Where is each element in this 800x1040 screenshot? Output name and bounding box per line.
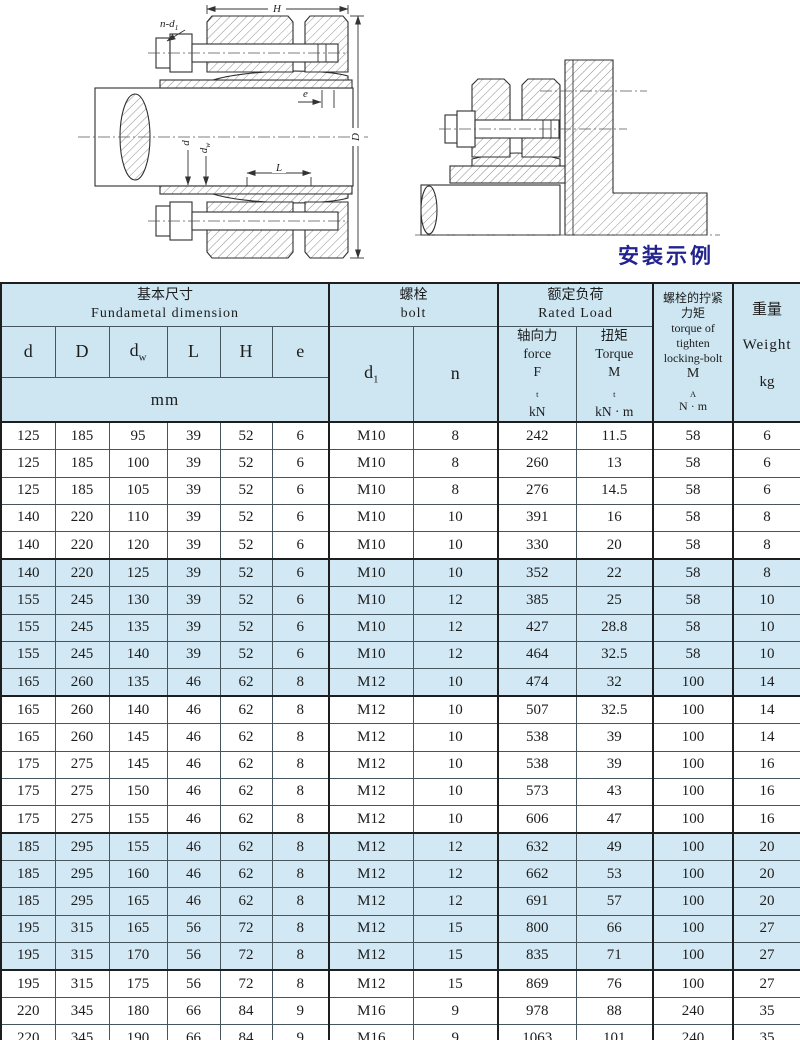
table-cell: 185: [1, 888, 55, 915]
table-cell: 47: [576, 805, 653, 833]
table-row: 17527514546628M12105383910016: [1, 751, 800, 778]
table-cell: 16: [733, 751, 800, 778]
table-row: 19531516556728M12158006610027: [1, 915, 800, 942]
catalog-page: H n-d1 e D d dw L: [0, 0, 800, 1040]
table-cell: 16: [733, 778, 800, 805]
table-cell: 869: [498, 970, 576, 998]
force-zh: 轴向力: [499, 327, 576, 345]
table-cell: 10: [413, 724, 498, 751]
table-cell: 6: [733, 422, 800, 450]
table-cell: M10: [329, 559, 413, 587]
table-cell: 185: [55, 477, 109, 504]
table-cell: 240: [653, 998, 733, 1025]
table-cell: 46: [167, 833, 220, 861]
table-cell: 9: [272, 998, 329, 1025]
table-cell: 72: [220, 970, 272, 998]
table-cell: 165: [1, 668, 55, 696]
table-cell: 14: [733, 696, 800, 724]
table-cell: 125: [1, 422, 55, 450]
table-row: 14022012539526M101035222588: [1, 559, 800, 587]
table-cell: 10: [733, 641, 800, 668]
table-cell: 39: [167, 614, 220, 641]
table-cell: 46: [167, 778, 220, 805]
table-cell: 35: [733, 1025, 800, 1040]
header-weight: 重量 Weight kg: [733, 283, 800, 422]
table-cell: 95: [109, 422, 167, 450]
table-cell: M10: [329, 532, 413, 560]
tighten-unit: N · m: [654, 399, 732, 414]
table-cell: 260: [55, 696, 109, 724]
table-cell: 46: [167, 724, 220, 751]
table-cell: 125: [1, 450, 55, 477]
table-cell: 190: [109, 1025, 167, 1040]
dimension-nd1-label: n-d1: [160, 18, 178, 32]
basic-dimension-zh: 基本尺寸: [2, 287, 328, 305]
table-cell: 295: [55, 861, 109, 888]
table-cell: 195: [1, 942, 55, 970]
table-cell: 160: [109, 861, 167, 888]
installation-example-caption: 安装示例: [618, 240, 758, 270]
table-cell: 58: [653, 614, 733, 641]
header-basic-dimension: 基本尺寸 Fundametal dimension: [1, 283, 329, 326]
table-cell: M12: [329, 861, 413, 888]
table-cell: 8: [272, 805, 329, 833]
table-cell: M10: [329, 477, 413, 504]
col-header-n: n: [413, 326, 498, 422]
table-cell: 145: [109, 751, 167, 778]
flange-hub: [565, 60, 707, 235]
table-cell: 8: [272, 696, 329, 724]
bolt-zh: 螺栓: [330, 287, 497, 305]
table-cell: 6: [272, 532, 329, 560]
table-cell: 165: [109, 915, 167, 942]
table-cell: 84: [220, 998, 272, 1025]
table-cell: 20: [733, 861, 800, 888]
table-cell: 220: [55, 532, 109, 560]
weight-zh: 重量: [734, 295, 800, 337]
table-cell: 84: [220, 1025, 272, 1040]
table-cell: M10: [329, 422, 413, 450]
table-cell: 13: [576, 450, 653, 477]
table-cell: 58: [653, 450, 733, 477]
col-header-e: e: [272, 326, 329, 378]
table-cell: 100: [653, 696, 733, 724]
table-cell: 16: [733, 805, 800, 833]
table-row: 1251859539526M10824211.5586: [1, 422, 800, 450]
table-cell: 56: [167, 942, 220, 970]
table-cell: 39: [167, 559, 220, 587]
table-cell: 62: [220, 751, 272, 778]
table-cell: 8: [413, 450, 498, 477]
table-cell: 185: [1, 833, 55, 861]
table-cell: 52: [220, 532, 272, 560]
table-cell: 16: [576, 504, 653, 531]
table-cell: 155: [109, 833, 167, 861]
table-cell: 165: [109, 888, 167, 915]
table-cell: 25: [576, 587, 653, 614]
table-cell: M12: [329, 888, 413, 915]
table-cell: M16: [329, 1025, 413, 1040]
table-cell: 245: [55, 587, 109, 614]
table-cell: 100: [653, 970, 733, 998]
tighten-en2: tighten: [654, 336, 732, 351]
table-cell: 220: [1, 1025, 55, 1040]
table-cell: 155: [1, 641, 55, 668]
table-cell: 220: [55, 559, 109, 587]
table-cell: 58: [653, 422, 733, 450]
table-cell: 6: [272, 614, 329, 641]
table-cell: 20: [733, 833, 800, 861]
table-cell: 8: [413, 422, 498, 450]
table-row: 17527515046628M12105734310016: [1, 778, 800, 805]
dimension-L-label: L: [275, 162, 282, 174]
table-cell: 6: [733, 477, 800, 504]
table-cell: 10: [413, 778, 498, 805]
table-cell: 260: [55, 724, 109, 751]
table-cell: 345: [55, 1025, 109, 1040]
table-cell: 276: [498, 477, 576, 504]
table-cell: M12: [329, 942, 413, 970]
table-cell: 10: [413, 668, 498, 696]
table-cell: 978: [498, 998, 576, 1025]
table-cell: 52: [220, 477, 272, 504]
table-cell: 352: [498, 559, 576, 587]
force-symbol: Ft: [499, 363, 576, 404]
table-cell: M12: [329, 833, 413, 861]
table-cell: 66: [576, 915, 653, 942]
table-cell: 15: [413, 915, 498, 942]
table-cell: 140: [1, 559, 55, 587]
torque-unit: kN · m: [577, 403, 653, 421]
dimension-H-label: H: [272, 3, 282, 15]
table-cell: 835: [498, 942, 576, 970]
table-cell: 315: [55, 915, 109, 942]
table-cell: 125: [109, 559, 167, 587]
table-cell: 62: [220, 696, 272, 724]
table-cell: M12: [329, 668, 413, 696]
table-cell: 72: [220, 915, 272, 942]
col-header-dw: dw: [109, 326, 167, 378]
tighten-en3: locking-bolt: [654, 351, 732, 366]
upper-thrust-ring: [160, 80, 352, 88]
table-row: 15524514039526M101246432.55810: [1, 641, 800, 668]
table-cell: 275: [55, 805, 109, 833]
table-cell: 245: [55, 641, 109, 668]
table-cell: 185: [1, 861, 55, 888]
table-cell: 130: [109, 587, 167, 614]
table-row: 14022012039526M101033020588: [1, 532, 800, 560]
drawing-installation-example: [415, 45, 725, 270]
table-cell: 538: [498, 751, 576, 778]
table-cell: 6: [272, 450, 329, 477]
table-cell: 39: [167, 532, 220, 560]
table-cell: 62: [220, 724, 272, 751]
table-cell: 145: [109, 724, 167, 751]
table-cell: 76: [576, 970, 653, 998]
table-cell: 14.5: [576, 477, 653, 504]
table-cell: 100: [653, 724, 733, 751]
table-cell: 72: [220, 942, 272, 970]
table-cell: 8: [733, 532, 800, 560]
table-cell: 14: [733, 724, 800, 751]
table-cell: M12: [329, 778, 413, 805]
dimension-d-label: d: [180, 140, 192, 146]
torque-en: Torque: [577, 345, 653, 363]
table-cell: 10: [413, 532, 498, 560]
table-cell: 52: [220, 641, 272, 668]
table-cell: 6: [272, 477, 329, 504]
table-cell: 88: [576, 998, 653, 1025]
table-cell: 27: [733, 915, 800, 942]
table-cell: 32.5: [576, 696, 653, 724]
table-cell: 110: [109, 504, 167, 531]
bolt-en: bolt: [330, 305, 497, 322]
table-cell: 62: [220, 888, 272, 915]
torque-zh: 扭矩: [577, 327, 653, 345]
table-cell: 125: [1, 477, 55, 504]
thrust-ring: [450, 166, 565, 183]
table-cell: 8: [272, 942, 329, 970]
drawing-section-view: H n-d1 e D d dw L: [0, 0, 395, 282]
table-cell: 105: [109, 477, 167, 504]
table-cell: 6: [272, 641, 329, 668]
table-cell: 100: [653, 778, 733, 805]
table-row: 15524513039526M1012385255810: [1, 587, 800, 614]
table-cell: M12: [329, 915, 413, 942]
table-cell: M10: [329, 641, 413, 668]
force-en: force: [499, 345, 576, 363]
table-cell: 52: [220, 587, 272, 614]
table-cell: 275: [55, 778, 109, 805]
table-cell: 15: [413, 942, 498, 970]
table-cell: 9: [413, 998, 498, 1025]
shaft-section-end: [421, 186, 437, 234]
table-cell: 155: [1, 587, 55, 614]
table-cell: 150: [109, 778, 167, 805]
table-cell: 100: [653, 915, 733, 942]
table-cell: 10: [733, 614, 800, 641]
table-cell: 165: [1, 724, 55, 751]
table-cell: 135: [109, 614, 167, 641]
table-cell: 220: [1, 998, 55, 1025]
table-cell: 8: [272, 833, 329, 861]
table-cell: 155: [1, 614, 55, 641]
table-cell: 101: [576, 1025, 653, 1040]
table-cell: 39: [167, 587, 220, 614]
table-cell: 242: [498, 422, 576, 450]
rated-load-en: Rated Load: [499, 305, 652, 322]
header-rated-load: 额定负荷 Rated Load: [498, 283, 653, 326]
table-cell: 56: [167, 970, 220, 998]
table-cell: 140: [109, 641, 167, 668]
table-cell: 8: [272, 778, 329, 805]
table-cell: 606: [498, 805, 576, 833]
table-cell: 165: [1, 696, 55, 724]
table-cell: 10: [413, 559, 498, 587]
table-cell: 52: [220, 422, 272, 450]
table-cell: 12: [413, 614, 498, 641]
dimension-e-label: e: [303, 88, 308, 100]
table-cell: 100: [653, 805, 733, 833]
table-cell: 46: [167, 696, 220, 724]
table-cell: 6: [272, 504, 329, 531]
table-row: 12518510539526M10827614.5586: [1, 477, 800, 504]
torque-symbol: Mt: [577, 363, 653, 404]
table-cell: 260: [498, 450, 576, 477]
table-cell: 62: [220, 778, 272, 805]
table-cell: 58: [653, 504, 733, 531]
table-cell: 6: [272, 587, 329, 614]
table-row: 19531517556728M12158697610027: [1, 970, 800, 998]
table-cell: 27: [733, 942, 800, 970]
table-cell: 43: [576, 778, 653, 805]
table-cell: M10: [329, 614, 413, 641]
table-cell: 315: [55, 970, 109, 998]
table-cell: M12: [329, 970, 413, 998]
table-cell: 46: [167, 861, 220, 888]
table-cell: M10: [329, 587, 413, 614]
table-cell: 57: [576, 888, 653, 915]
table-cell: 9: [272, 1025, 329, 1040]
table-cell: 8: [733, 504, 800, 531]
table-cell: 175: [109, 970, 167, 998]
table-cell: 52: [220, 504, 272, 531]
table-cell: 32: [576, 668, 653, 696]
table-cell: 62: [220, 668, 272, 696]
table-cell: 464: [498, 641, 576, 668]
table-cell: 800: [498, 915, 576, 942]
table-cell: 22: [576, 559, 653, 587]
table-cell: 39: [576, 751, 653, 778]
table-row: 19531517056728M12158357110027: [1, 942, 800, 970]
table-cell: 58: [653, 641, 733, 668]
table-cell: 71: [576, 942, 653, 970]
table-cell: 295: [55, 888, 109, 915]
lower-thrust-ring: [160, 186, 352, 194]
table-cell: 58: [653, 532, 733, 560]
basic-dimension-en: Fundametal dimension: [2, 305, 328, 322]
table-row: 16526013546628M12104743210014: [1, 668, 800, 696]
left-collar: [472, 79, 510, 157]
table-cell: 39: [576, 724, 653, 751]
col-header-D: D: [55, 326, 109, 378]
table-cell: 46: [167, 751, 220, 778]
table-cell: 12: [413, 861, 498, 888]
table-cell: 8: [413, 477, 498, 504]
table-cell: 20: [733, 888, 800, 915]
table-cell: 52: [220, 614, 272, 641]
table-cell: 8: [272, 861, 329, 888]
table-cell: 66: [167, 998, 220, 1025]
table-cell: 8: [272, 915, 329, 942]
table-cell: 170: [109, 942, 167, 970]
tighten-en1: torque of: [654, 321, 732, 336]
table-cell: 12: [413, 587, 498, 614]
table-row: 15524513539526M101242728.85810: [1, 614, 800, 641]
table-cell: 385: [498, 587, 576, 614]
table-row: 18529516046628M12126625310020: [1, 861, 800, 888]
table-cell: 240: [653, 1025, 733, 1040]
table-cell: 391: [498, 504, 576, 531]
table-cell: 35: [733, 998, 800, 1025]
table-cell: 20: [576, 532, 653, 560]
table-cell: 691: [498, 888, 576, 915]
table-cell: M10: [329, 504, 413, 531]
table-cell: M16: [329, 998, 413, 1025]
table-cell: 62: [220, 805, 272, 833]
col-header-d1: d1: [329, 326, 413, 422]
table-cell: 140: [109, 696, 167, 724]
table-row: 14022011039526M101039116588: [1, 504, 800, 531]
table-cell: 100: [653, 861, 733, 888]
table-cell: 330: [498, 532, 576, 560]
table-cell: 427: [498, 614, 576, 641]
table-cell: M10: [329, 450, 413, 477]
table-cell: 573: [498, 778, 576, 805]
table-cell: 39: [167, 450, 220, 477]
table-row: 17527515546628M12106064710016: [1, 805, 800, 833]
header-bolt: 螺栓 bolt: [329, 283, 498, 326]
table-row: 22034518066849M1699788824035: [1, 998, 800, 1025]
table-cell: 27: [733, 970, 800, 998]
table-cell: 175: [1, 805, 55, 833]
table-cell: 6: [272, 422, 329, 450]
table-cell: 8: [272, 888, 329, 915]
unit-mm-cell: mm: [1, 378, 329, 423]
table-cell: 632: [498, 833, 576, 861]
table-cell: 1063: [498, 1025, 576, 1040]
table-cell: 32.5: [576, 641, 653, 668]
weight-unit: kg: [734, 374, 800, 411]
table-cell: 8: [272, 724, 329, 751]
table-cell: 195: [1, 915, 55, 942]
table-cell: 62: [220, 833, 272, 861]
table-cell: 15: [413, 970, 498, 998]
col-header-H: H: [220, 326, 272, 378]
table-cell: 10: [413, 805, 498, 833]
table-cell: 345: [55, 998, 109, 1025]
table-cell: 39: [167, 504, 220, 531]
table-cell: 140: [1, 504, 55, 531]
table-cell: 49: [576, 833, 653, 861]
col-header-torque: 扭矩 Torque Mt kN · m: [576, 326, 653, 422]
spec-table: 基本尺寸 Fundametal dimension 螺栓 bolt 额定负荷 R…: [0, 282, 800, 1040]
table-row: 22034519066849M169106310124035: [1, 1025, 800, 1040]
table-cell: 8: [272, 751, 329, 778]
table-cell: 12: [413, 641, 498, 668]
table-cell: 100: [653, 668, 733, 696]
tighten-symbol: MA: [654, 366, 732, 399]
table-cell: 39: [167, 477, 220, 504]
table-cell: M12: [329, 696, 413, 724]
table-cell: 12: [413, 888, 498, 915]
table-cell: 62: [220, 861, 272, 888]
table-cell: 8: [272, 668, 329, 696]
table-cell: 315: [55, 942, 109, 970]
table-cell: 120: [109, 532, 167, 560]
shaft: [421, 185, 560, 235]
table-cell: 6: [733, 450, 800, 477]
table-row: 18529515546628M12126324910020: [1, 833, 800, 861]
table-cell: 46: [167, 668, 220, 696]
table-cell: 185: [55, 422, 109, 450]
table-cell: 8: [272, 970, 329, 998]
table-cell: 180: [109, 998, 167, 1025]
figures-area: H n-d1 e D d dw L: [0, 0, 800, 282]
table-cell: 474: [498, 668, 576, 696]
table-cell: 245: [55, 614, 109, 641]
table-row: 18529516546628M12126915710020: [1, 888, 800, 915]
